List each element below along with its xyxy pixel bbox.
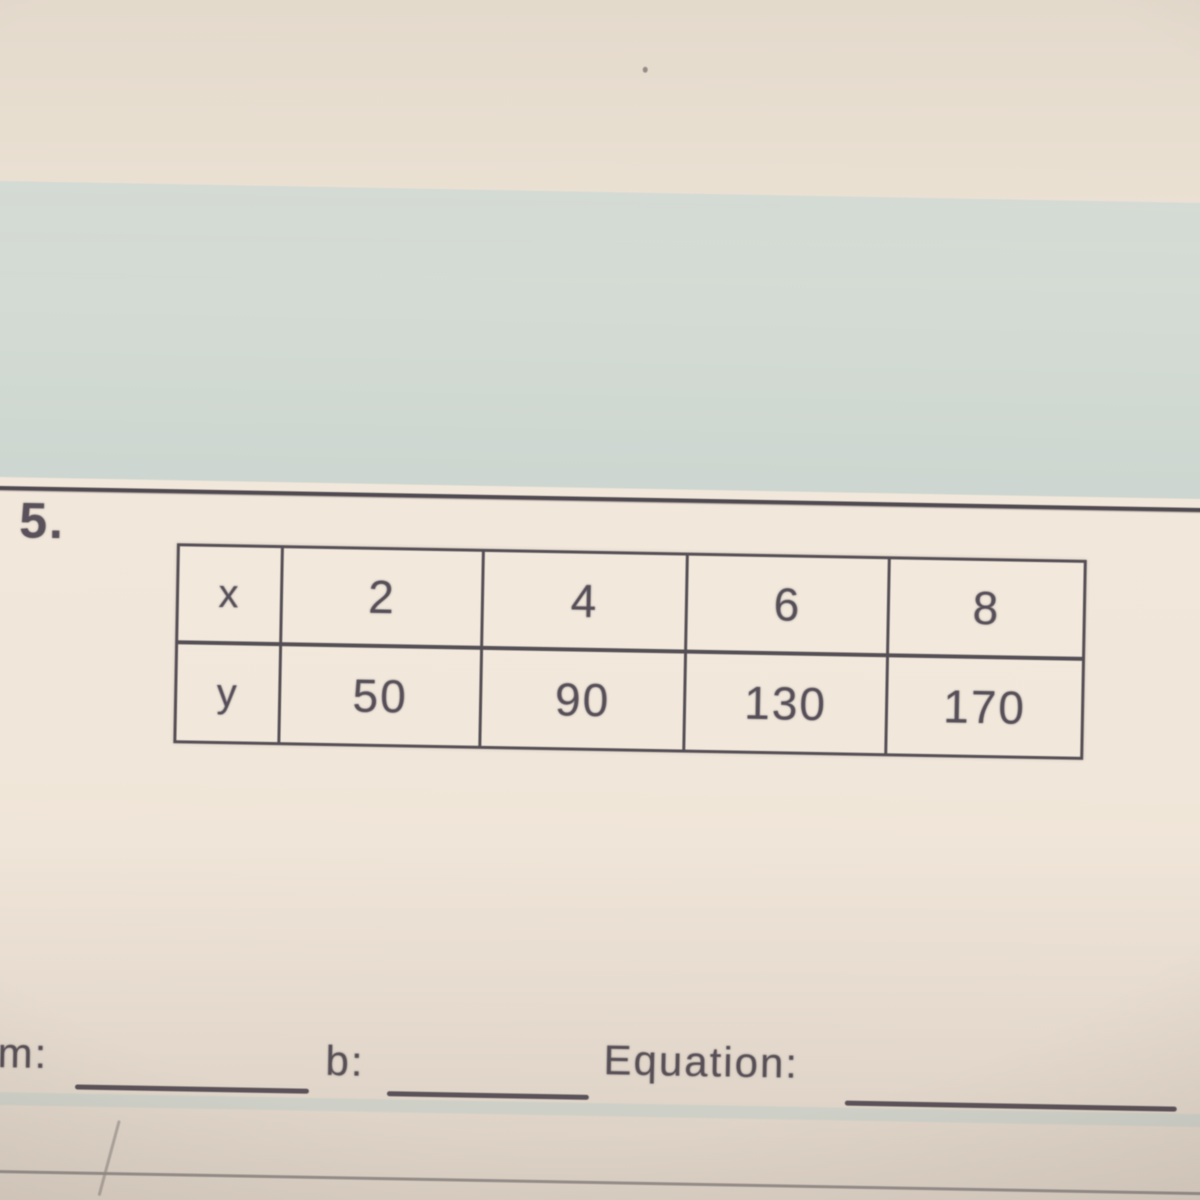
bottom-rule-line xyxy=(0,1168,1200,1197)
table-header-y: y xyxy=(176,644,282,742)
xy-table: x 2 4 6 8 y 50 90 130 170 xyxy=(173,543,1087,760)
pencil-stray-mark xyxy=(98,1120,121,1196)
table-y-value-3: 130 xyxy=(685,654,889,754)
table-header-x: x xyxy=(178,546,284,646)
paper-surface: 5. x 2 4 6 8 y 50 90 130 170 m: b: Equat… xyxy=(0,0,1200,1200)
table-y-value-1: 50 xyxy=(280,646,483,746)
table-y-value-4: 170 xyxy=(887,657,1082,757)
b-label: b: xyxy=(325,1037,365,1086)
paper-speck xyxy=(643,67,648,73)
table-x-value-1: 2 xyxy=(282,548,485,650)
table-y-value-2: 90 xyxy=(481,650,687,750)
table-x-value-4: 8 xyxy=(889,559,1084,661)
problem-number: 5. xyxy=(19,491,66,550)
paper-content: 5. x 2 4 6 8 y 50 90 130 170 m: b: Equat… xyxy=(0,0,1200,1200)
table-x-value-3: 6 xyxy=(687,556,891,658)
worksheet-photo: 5. x 2 4 6 8 y 50 90 130 170 m: b: Equat… xyxy=(0,0,1200,1200)
b-answer-blank xyxy=(387,1091,589,1100)
m-answer-blank xyxy=(75,1084,309,1093)
equation-label: Equation: xyxy=(603,1036,799,1088)
m-label: m: xyxy=(0,1029,49,1078)
table-x-value-2: 4 xyxy=(483,552,689,654)
sage-band xyxy=(0,179,1200,501)
printed-faint-stripe xyxy=(0,1090,1200,1129)
